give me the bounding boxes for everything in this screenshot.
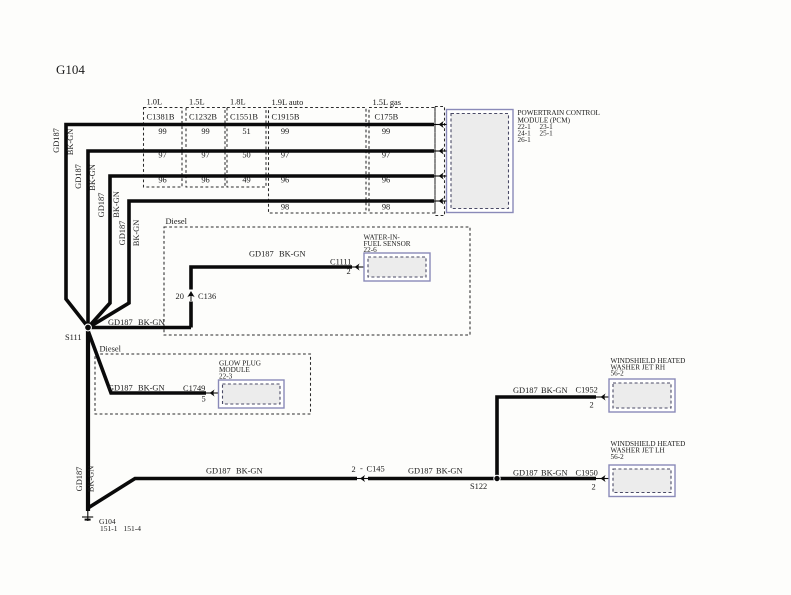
svg-text:1.8L: 1.8L	[230, 98, 246, 107]
svg-text:C1952: C1952	[576, 386, 598, 395]
svg-text:G104: G104	[56, 62, 85, 77]
svg-text:22-6: 22-6	[364, 246, 378, 254]
svg-text:BK-GN: BK-GN	[112, 191, 121, 218]
svg-text:-: -	[360, 464, 363, 473]
svg-text:BK-GN: BK-GN	[87, 466, 96, 493]
svg-text:Diesel: Diesel	[100, 345, 122, 354]
svg-text:BK-GN: BK-GN	[279, 250, 306, 259]
svg-text:GD187: GD187	[108, 318, 133, 327]
svg-text:GD187: GD187	[206, 467, 231, 476]
svg-text:1.9L auto: 1.9L auto	[272, 98, 304, 107]
svg-text:GD187: GD187	[52, 128, 61, 153]
svg-text:GD187: GD187	[408, 467, 433, 476]
svg-text:GD187: GD187	[75, 467, 84, 492]
svg-text:98: 98	[382, 203, 390, 212]
svg-text:2: 2	[352, 465, 356, 474]
svg-text:GD187: GD187	[513, 469, 538, 478]
svg-text:99: 99	[158, 127, 166, 136]
svg-text:C1111: C1111	[330, 258, 351, 267]
svg-text:C175B: C175B	[375, 113, 399, 122]
svg-text:1.5L gas: 1.5L gas	[373, 98, 402, 107]
svg-text:C1551B: C1551B	[230, 113, 258, 122]
svg-text:GD187: GD187	[249, 250, 274, 259]
svg-text:BK-GN: BK-GN	[138, 384, 165, 393]
svg-text:22-3: 22-3	[219, 373, 233, 381]
svg-text:BK-GN: BK-GN	[436, 467, 463, 476]
svg-text:56-2: 56-2	[611, 370, 625, 378]
svg-text:BK-GN: BK-GN	[138, 318, 165, 327]
svg-text:C1232B: C1232B	[189, 113, 217, 122]
svg-text:BK-GN: BK-GN	[66, 129, 75, 156]
svg-text:56-2: 56-2	[611, 453, 625, 461]
svg-text:2: 2	[592, 483, 596, 492]
svg-text:S111: S111	[65, 333, 82, 342]
svg-text:151-1: 151-1	[100, 524, 118, 533]
svg-text:BK-GN: BK-GN	[541, 469, 568, 478]
svg-text:BK-GN: BK-GN	[236, 467, 263, 476]
svg-text:GD187: GD187	[513, 386, 538, 395]
svg-text:C1381B: C1381B	[147, 113, 175, 122]
svg-text:99: 99	[382, 127, 390, 136]
svg-text:C1915B: C1915B	[272, 113, 300, 122]
svg-text:1.5L: 1.5L	[189, 98, 205, 107]
svg-text:98: 98	[281, 203, 289, 212]
svg-text:2: 2	[347, 267, 351, 276]
svg-text:BK-GN: BK-GN	[132, 220, 141, 247]
svg-text:Diesel: Diesel	[166, 217, 188, 226]
svg-text:51: 51	[242, 127, 250, 136]
svg-text:151-4: 151-4	[124, 524, 142, 533]
svg-text:1.0L: 1.0L	[147, 98, 163, 107]
svg-text:GD187: GD187	[74, 164, 83, 189]
svg-text:C1749: C1749	[183, 384, 205, 393]
svg-text:20: 20	[176, 292, 184, 301]
svg-text:99: 99	[201, 127, 209, 136]
svg-text:BK-GN: BK-GN	[88, 164, 97, 191]
svg-text:2: 2	[590, 401, 594, 410]
svg-text:C145: C145	[367, 465, 385, 474]
svg-text:99: 99	[281, 127, 289, 136]
svg-text:GD187: GD187	[118, 221, 127, 246]
svg-text:5: 5	[202, 395, 206, 404]
svg-text:GD187: GD187	[108, 384, 133, 393]
svg-text:C1950: C1950	[576, 469, 598, 478]
svg-text:25-1: 25-1	[540, 130, 554, 138]
svg-text:GD187: GD187	[97, 193, 106, 218]
svg-text:26-1: 26-1	[518, 136, 532, 144]
svg-text:BK-GN: BK-GN	[541, 386, 568, 395]
svg-text:S122: S122	[470, 482, 487, 491]
svg-text:C136: C136	[198, 292, 216, 301]
